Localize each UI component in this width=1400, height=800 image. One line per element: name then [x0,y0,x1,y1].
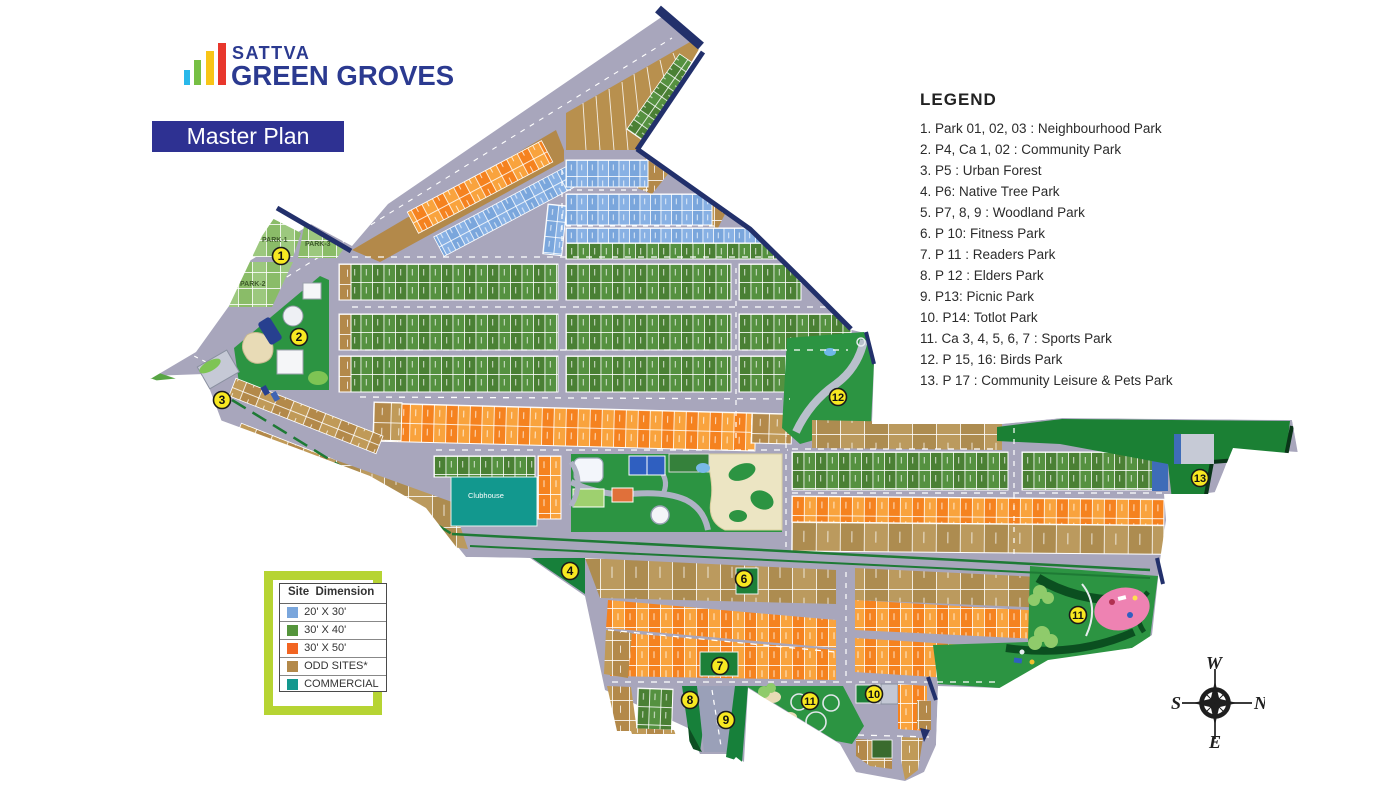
svg-text:N: N [1253,693,1265,713]
svg-text:1: 1 [278,249,285,263]
svg-text:13: 13 [1194,473,1206,485]
svg-text:11: 11 [804,696,816,708]
svg-text:PARK-3: PARK-3 [305,241,331,248]
svg-text:2: 2 [296,330,303,344]
svg-text:S: S [1171,693,1181,713]
svg-text:9: 9 [723,713,730,727]
svg-text:Clubhouse: Clubhouse [468,491,504,500]
svg-text:PARK-1: PARK-1 [262,237,288,244]
svg-text:7: 7 [717,659,724,673]
svg-text:6: 6 [741,572,748,586]
svg-text:4: 4 [567,564,574,578]
svg-text:E: E [1208,732,1221,750]
svg-text:PARK-2: PARK-2 [240,281,266,288]
svg-text:11: 11 [1072,610,1084,622]
svg-text:3: 3 [219,393,226,407]
svg-text:10: 10 [868,689,880,701]
svg-text:12: 12 [832,392,844,404]
svg-text:W: W [1206,655,1224,673]
svg-text:8: 8 [687,693,694,707]
